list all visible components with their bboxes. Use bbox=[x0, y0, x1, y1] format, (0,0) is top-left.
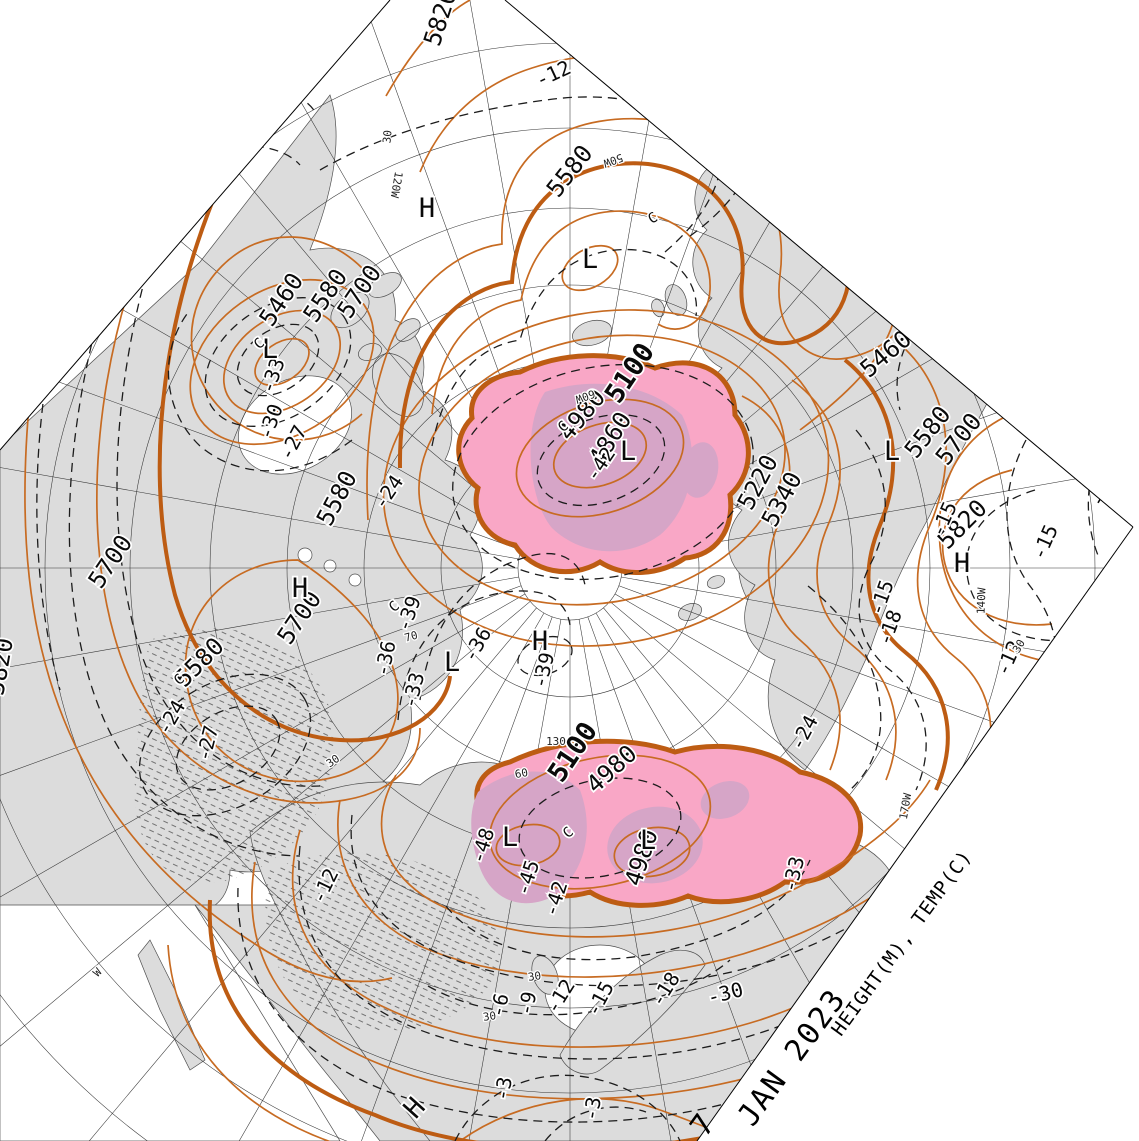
temperature-label: -12 bbox=[532, 55, 575, 92]
pressure-center-label: L bbox=[502, 822, 518, 853]
graticule-label: 60 bbox=[514, 766, 529, 781]
pressure-center-label: H bbox=[954, 548, 970, 579]
graticule-label: 30 bbox=[482, 1009, 497, 1024]
pressure-center-label: H bbox=[532, 626, 548, 657]
weather-map-stage: 5820558054605580570054605100498048605220… bbox=[0, 0, 1139, 1141]
temperature-label: -3 bbox=[578, 1095, 606, 1123]
pressure-center-label: L bbox=[640, 825, 656, 856]
graticule-label: 120W bbox=[388, 170, 405, 199]
graticule-label: 30 bbox=[527, 969, 542, 984]
temperature-label: -3 bbox=[489, 1075, 517, 1103]
pressure-center-label: L bbox=[444, 647, 460, 678]
height-label: 5820 bbox=[418, 0, 462, 49]
graticule-label: 30 bbox=[380, 130, 394, 144]
pressure-center-label: H bbox=[419, 193, 435, 224]
pressure-center-label: H bbox=[292, 573, 308, 604]
pressure-center-label: L bbox=[582, 244, 598, 275]
graticule-label: 130 bbox=[546, 735, 566, 748]
map-canvas: 5820558054605580570054605100498048605220… bbox=[0, 0, 1139, 1141]
contour-center-mark: C bbox=[645, 209, 660, 227]
graticule-label: 140W bbox=[975, 587, 989, 614]
pressure-center-label: L bbox=[620, 436, 636, 467]
pressure-center-label: L bbox=[884, 436, 900, 467]
temperature-label: -9 bbox=[513, 989, 541, 1018]
graticule-label: 170W bbox=[897, 792, 914, 821]
temperature-label: -15 bbox=[1026, 521, 1063, 564]
